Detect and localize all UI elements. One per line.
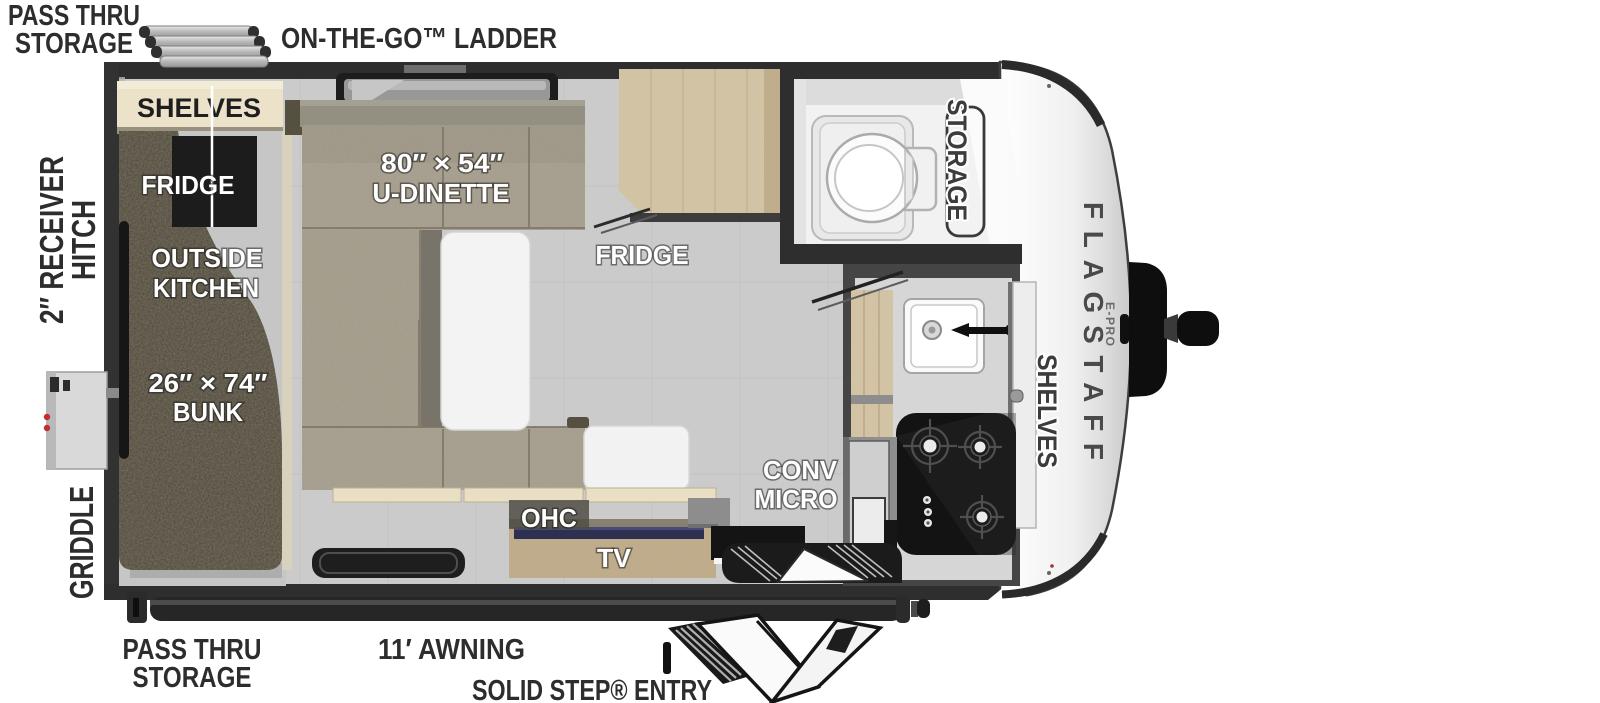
svg-text:E-PRO: E-PRO — [1103, 302, 1117, 348]
svg-text:GRIDDLE: GRIDDLE — [63, 486, 100, 599]
svg-text:11′ AWNING: 11′ AWNING — [378, 634, 525, 666]
svg-text:BUNK: BUNK — [173, 397, 243, 427]
svg-text:STORAGE: STORAGE — [942, 99, 972, 221]
svg-text:SHELVES: SHELVES — [137, 93, 261, 123]
svg-text:SOLID STEP® ENTRY: SOLID STEP® ENTRY — [472, 675, 712, 703]
svg-text:TV: TV — [597, 543, 632, 573]
svg-text:HITCH: HITCH — [65, 200, 102, 280]
svg-text:KITCHEN: KITCHEN — [153, 273, 259, 303]
svg-text:U-DINETTE: U-DINETTE — [373, 178, 510, 208]
svg-text:CONV: CONV — [763, 455, 838, 485]
svg-text:FRIDGE: FRIDGE — [142, 170, 235, 200]
svg-text:STORAGE: STORAGE — [15, 28, 133, 60]
svg-text:ON-THE-GO™ LADDER: ON-THE-GO™ LADDER — [281, 23, 557, 55]
svg-text:OHC: OHC — [521, 503, 577, 533]
svg-text:SHELVES: SHELVES — [1032, 354, 1062, 468]
svg-text:OUTSIDE: OUTSIDE — [152, 243, 263, 273]
svg-text:80″ × 54″: 80″ × 54″ — [381, 148, 503, 178]
svg-text:MICRO: MICRO — [755, 484, 838, 514]
svg-text:STORAGE: STORAGE — [133, 662, 252, 694]
svg-text:FRIDGE: FRIDGE — [596, 240, 689, 270]
svg-text:26″ × 74″: 26″ × 74″ — [149, 368, 268, 398]
